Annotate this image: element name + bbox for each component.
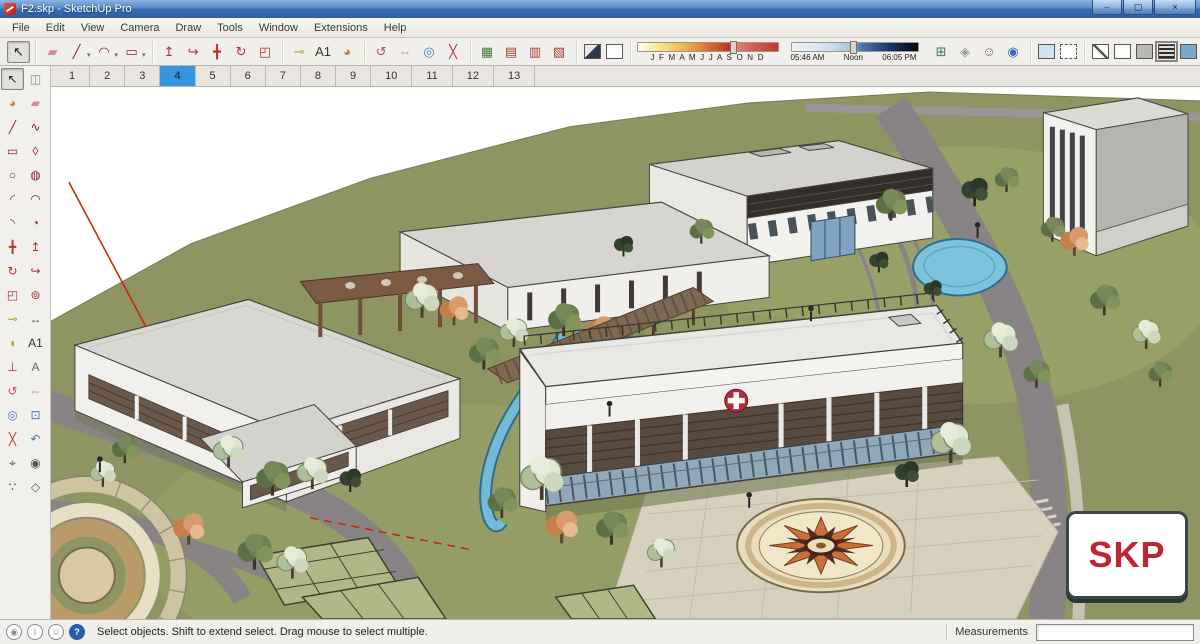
sketchup-logo-icon: [4, 3, 16, 15]
date-slider-months: J F M A M J J A S O N D: [637, 53, 779, 62]
toolbar-right: ⊞◈☺◉: [925, 38, 1200, 65]
main-toolbar: ↖▰╱▾◠▾▭▾↥↪╋↻◰⊸A1◕↺⇔◎╳▦▤▥▧ J F M A M J J …: [0, 38, 1200, 66]
menu-edit[interactable]: Edit: [38, 20, 73, 36]
menu-camera[interactable]: Camera: [112, 20, 167, 36]
toolbar-group-face-style: [1085, 41, 1200, 63]
scene-tab-2[interactable]: 2: [90, 66, 125, 86]
mandala-plaza: [737, 499, 905, 592]
status-icons: ◉i☺?: [6, 624, 85, 640]
select-icon[interactable]: ↖: [7, 41, 30, 63]
drawing-viewport[interactable]: SKP: [51, 87, 1200, 619]
model-info-icon[interactable]: i: [27, 624, 43, 640]
large-tool-set-palette: ↖◫◕▰╱∿▭◊○◍◜◠◝◔╋↥↻↪◰⊚⊸↔◖A1⊥A↺⇔◎⊡╳↶⌖◉∵◇: [0, 66, 51, 619]
share-component-icon[interactable]: ▥: [524, 41, 547, 63]
scene-tab-10[interactable]: 10: [371, 66, 412, 86]
three-d-text-tool[interactable]: A: [24, 356, 47, 378]
pan-icon[interactable]: ⇔: [394, 41, 417, 63]
zoom-icon[interactable]: ◎: [418, 41, 441, 63]
zoom-window-tool[interactable]: ⊡: [24, 404, 47, 426]
look-around-tool[interactable]: ◉: [24, 452, 47, 474]
three-point-arc-tool[interactable]: ◝: [1, 212, 24, 234]
photo-textures-icon[interactable]: ☺: [978, 41, 1001, 63]
rectangle-tool[interactable]: ▭: [1, 140, 24, 162]
red-cross-emblem: [725, 389, 748, 412]
send-to-layout-icon[interactable]: ▧: [548, 41, 571, 63]
scene-tab-4[interactable]: 4: [160, 66, 195, 86]
toolbar-left: ↖▰╱▾◠▾▭▾↥↪╋↻◰⊸A1◕↺⇔◎╳▦▤▥▧: [2, 38, 631, 65]
add-location-icon[interactable]: ⊞: [930, 41, 953, 63]
protractor-tool[interactable]: ◖: [1, 332, 24, 354]
zoom-previous-tool[interactable]: ↶: [24, 428, 47, 450]
date-slider-track[interactable]: [637, 42, 779, 52]
make-component-tool[interactable]: ◫: [24, 68, 47, 90]
paint-bucket-icon[interactable]: ◕: [336, 41, 359, 63]
monochrome-icon[interactable]: [1180, 44, 1197, 59]
toggle-terrain-icon[interactable]: ◈: [954, 41, 977, 63]
line-dropdown[interactable]: ▾: [87, 51, 91, 59]
scene-tab-3[interactable]: 3: [125, 66, 160, 86]
freehand-tool[interactable]: ∿: [24, 116, 47, 138]
orbit-tool[interactable]: ↺: [1, 380, 24, 402]
toolbar-group-modify: ↥↪╋↻◰: [153, 41, 283, 63]
offset-tool[interactable]: ⊚: [24, 284, 47, 306]
eraser-icon[interactable]: ▰: [41, 41, 64, 63]
eraser-tool[interactable]: ▰: [24, 92, 47, 114]
shaded-icon[interactable]: [1136, 44, 1153, 59]
text-tool[interactable]: A1: [24, 332, 47, 354]
select-tool[interactable]: ↖: [1, 68, 24, 90]
push-pull-tool[interactable]: ↥: [24, 236, 47, 258]
time-slider-track[interactable]: [791, 42, 919, 52]
menu-extensions[interactable]: Extensions: [306, 20, 376, 36]
scene-tab-6[interactable]: 6: [231, 66, 266, 86]
help-icon[interactable]: ?: [69, 624, 85, 640]
shadow-time-slider[interactable]: 05:46 AM Noon 06:05 PM: [791, 42, 919, 62]
menu-help[interactable]: Help: [376, 20, 415, 36]
shadow-settings-icon[interactable]: [584, 44, 601, 59]
window-controls: –▢×: [1092, 0, 1196, 15]
time-end-label: 06:05 PM: [882, 53, 916, 62]
sketchup-window: F2.skp - SketchUp Pro –▢× FileEditViewCa…: [0, 0, 1200, 644]
rectangle-icon[interactable]: ▭: [120, 41, 143, 63]
wireframe-icon[interactable]: [1092, 44, 1109, 59]
menu-bar: FileEditViewCameraDrawToolsWindowExtensi…: [0, 18, 1200, 38]
rotated-rectangle-tool[interactable]: ◊: [24, 140, 47, 162]
follow-me-icon[interactable]: ↪: [182, 41, 205, 63]
toolbar-group-shadow-toggles: [577, 41, 631, 63]
follow-me-tool[interactable]: ↪: [24, 260, 47, 282]
title-bar: F2.skp - SketchUp Pro –▢×: [0, 0, 1200, 18]
arc-icon[interactable]: ◠: [93, 41, 116, 63]
measurements-area: Measurements: [946, 624, 1194, 641]
status-message: Select objects. Shift to extend select. …: [97, 626, 428, 638]
window-title: F2.skp - SketchUp Pro: [21, 3, 132, 15]
position-camera-tool[interactable]: ⌖: [1, 452, 24, 474]
menu-draw[interactable]: Draw: [167, 20, 209, 36]
share-model-icon[interactable]: ▤: [500, 41, 523, 63]
scene-tab-5[interactable]: 5: [196, 66, 231, 86]
move-tool[interactable]: ╋: [1, 236, 24, 258]
orbit-icon[interactable]: ↺: [370, 41, 393, 63]
pie-tool[interactable]: ◔: [24, 212, 47, 234]
scene-tab-9[interactable]: 9: [336, 66, 371, 86]
status-bar: ◉i☺? Select objects. Shift to extend sel…: [0, 619, 1200, 644]
toggle-shadows-icon[interactable]: [606, 44, 623, 59]
toolbar-group-edge-style: [1031, 41, 1085, 63]
line-icon[interactable]: ╱: [65, 41, 88, 63]
status-divider: [946, 625, 947, 639]
scale-tool[interactable]: ◰: [1, 284, 24, 306]
zoom-extents-icon[interactable]: ╳: [442, 41, 465, 63]
zoom-tool[interactable]: ◎: [1, 404, 24, 426]
get-models-icon[interactable]: ▦: [476, 41, 499, 63]
scene-tab-11[interactable]: 11: [412, 66, 452, 86]
rotate-tool[interactable]: ↻: [1, 260, 24, 282]
viewport-column: 12345678910111213: [51, 66, 1200, 619]
pan-tool[interactable]: ⇔: [24, 380, 47, 402]
date-slider-handle[interactable]: [730, 41, 737, 54]
toolbar-group-draw: ▰╱▾◠▾▭▾: [36, 41, 153, 63]
scene-tab-7[interactable]: 7: [266, 66, 301, 86]
x-ray-icon[interactable]: [1038, 44, 1055, 59]
hidden-line-icon[interactable]: [1114, 44, 1131, 59]
toolbar-group-warehouse: ▦▤▥▧: [471, 41, 577, 63]
section-plane-tool[interactable]: ◇: [24, 476, 47, 498]
zoom-extents-tool[interactable]: ╳: [1, 428, 24, 450]
credits-icon[interactable]: ☺: [48, 624, 64, 640]
geo-location-status-icon[interactable]: ◉: [6, 624, 22, 640]
time-slider-labels: 05:46 AM Noon 06:05 PM: [791, 53, 917, 62]
move-icon[interactable]: ╋: [206, 41, 229, 63]
paint-bucket-tool[interactable]: ◕: [1, 92, 24, 114]
menu-window[interactable]: Window: [251, 20, 306, 36]
toolbar-group-construction: ⊸A1◕: [283, 41, 365, 63]
scene-tab-1[interactable]: 1: [55, 66, 90, 86]
menu-file[interactable]: File: [4, 20, 38, 36]
text-icon[interactable]: A1: [312, 41, 335, 63]
shadow-date-slider[interactable]: J F M A M J J A S O N D: [637, 42, 779, 62]
time-slider-handle[interactable]: [850, 41, 857, 54]
close-button[interactable]: ×: [1154, 0, 1196, 15]
arc-dropdown[interactable]: ▾: [115, 51, 119, 59]
menu-view[interactable]: View: [73, 20, 113, 36]
dimension-tool[interactable]: ↔: [24, 308, 47, 330]
scene-tab-12[interactable]: 12: [453, 66, 494, 86]
rotate-icon[interactable]: ↻: [230, 41, 253, 63]
shaded-with-textures-icon[interactable]: [1158, 44, 1175, 59]
walk-tool[interactable]: ∵: [1, 476, 24, 498]
axes-tool[interactable]: ⊥: [1, 356, 24, 378]
minimize-button[interactable]: –: [1092, 0, 1122, 15]
toolbar-group-select: ↖: [2, 41, 36, 63]
tape-measure-icon[interactable]: ⊸: [288, 41, 311, 63]
time-start-label: 05:46 AM: [791, 53, 825, 62]
measurements-input[interactable]: [1036, 624, 1194, 641]
preview-in-google-earth-icon[interactable]: ◉: [1002, 41, 1025, 63]
scene-tab-13[interactable]: 13: [494, 66, 535, 86]
polygon-tool[interactable]: ◍: [24, 164, 47, 186]
scene-tab-8[interactable]: 8: [301, 66, 336, 86]
model-canvas[interactable]: [51, 87, 1200, 619]
measurements-label: Measurements: [955, 626, 1028, 638]
line-tool[interactable]: ╱: [1, 116, 24, 138]
scale-icon[interactable]: ◰: [254, 41, 277, 63]
push-pull-icon[interactable]: ↥: [158, 41, 181, 63]
toolbar-group-camera: ↺⇔◎╳: [365, 41, 471, 63]
back-edges-icon[interactable]: [1060, 44, 1077, 59]
rectangle-dropdown[interactable]: ▾: [142, 51, 146, 59]
two-point-arc-tool[interactable]: ◠: [24, 188, 47, 210]
menu-tools[interactable]: Tools: [209, 20, 251, 36]
arc-tool[interactable]: ◜: [1, 188, 24, 210]
tape-measure-tool[interactable]: ⊸: [1, 308, 24, 330]
restore-button[interactable]: ▢: [1123, 0, 1153, 15]
toolbar-group-location: ⊞◈☺◉: [925, 41, 1031, 63]
scene-tab-bar: 12345678910111213: [51, 66, 1200, 87]
circle-tool[interactable]: ○: [1, 164, 24, 186]
main-area: ↖◫◕▰╱∿▭◊○◍◜◠◝◔╋↥↻↪◰⊚⊸↔◖A1⊥A↺⇔◎⊡╳↶⌖◉∵◇ 12…: [0, 66, 1200, 619]
skp-watermark: SKP: [1066, 511, 1188, 599]
time-noon-label: Noon: [844, 53, 863, 62]
